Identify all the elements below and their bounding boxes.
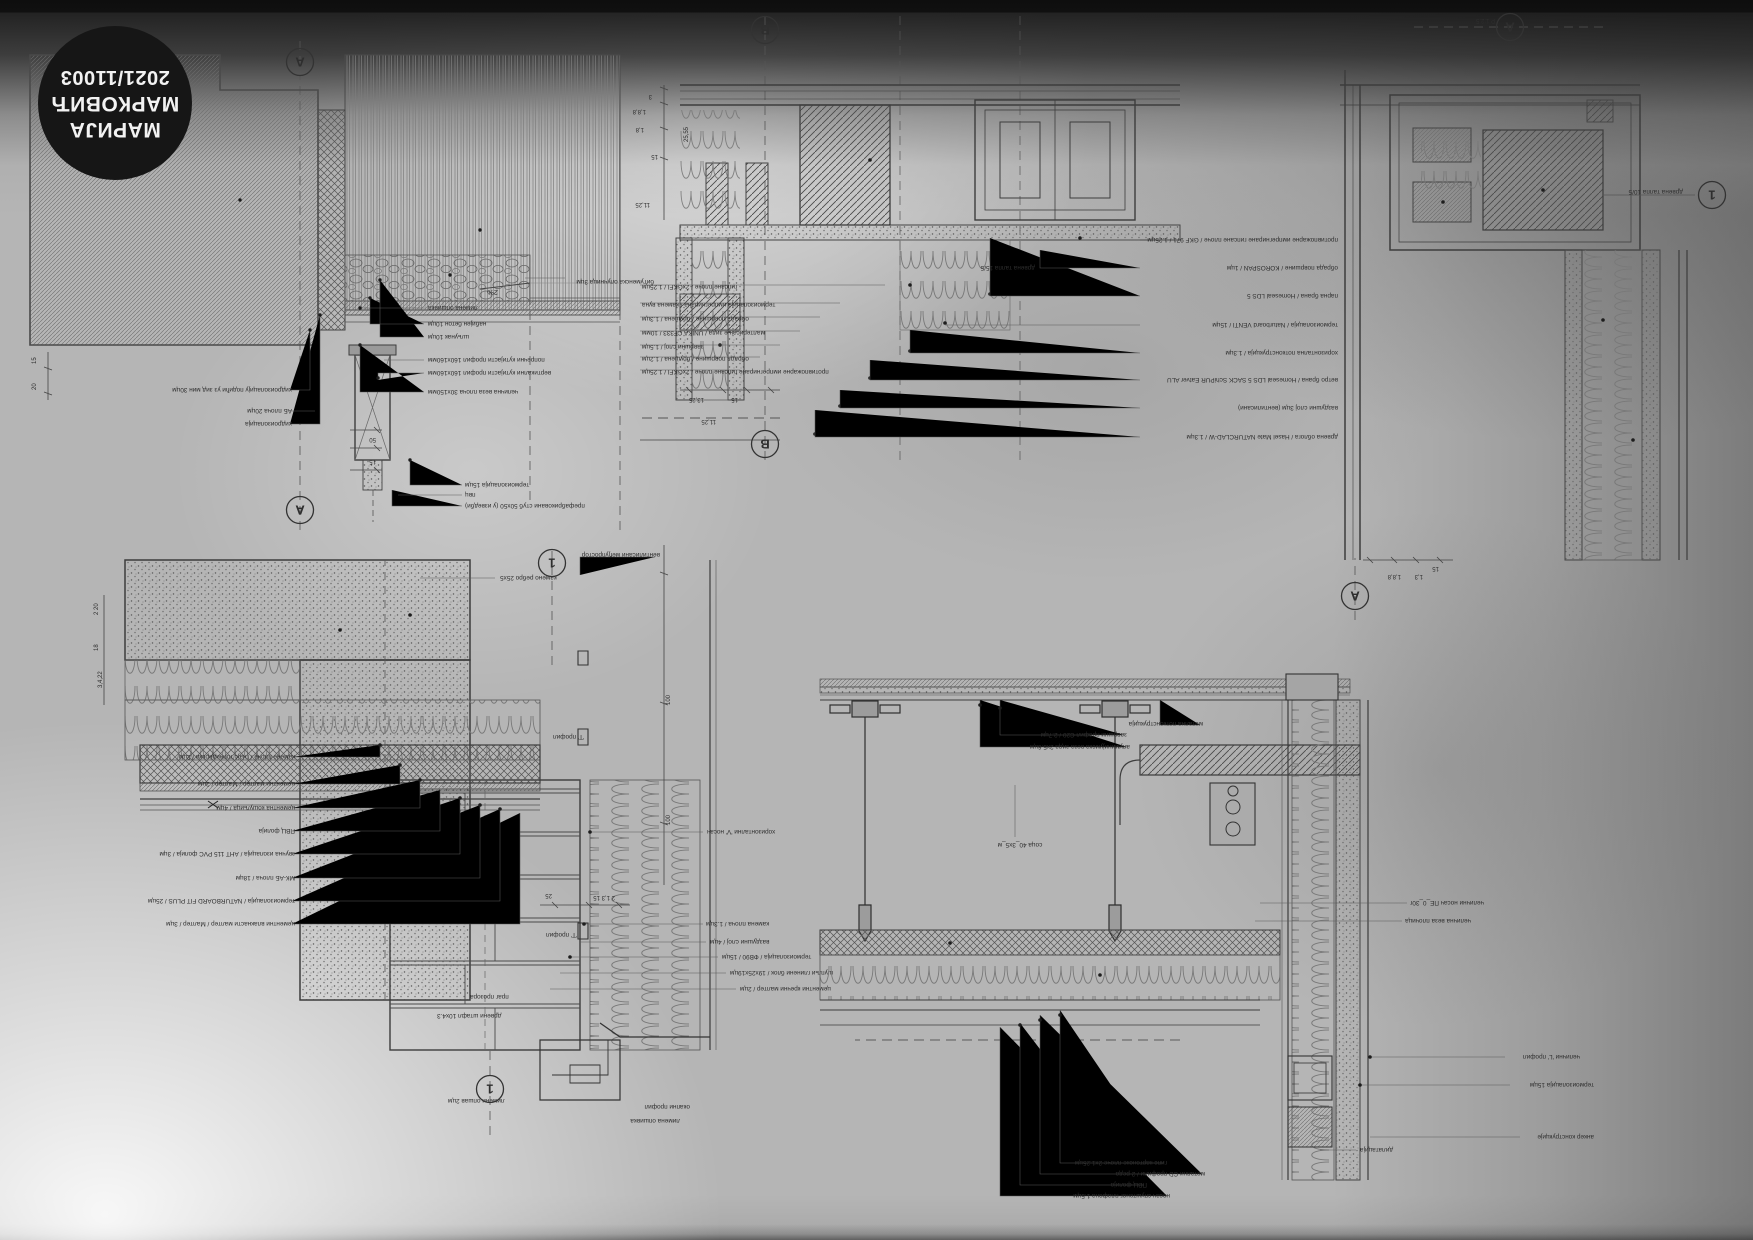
annotation-label: хоризонтална потконструкција / 1.3цм (1225, 349, 1338, 356)
window-plan-detail: противпожарне импрегниране гипсане плоче… (632, 15, 1338, 460)
section-marker-letter: 1 (1708, 188, 1715, 203)
annotation-label: 1,3 (1414, 573, 1423, 579)
masonry-pier (800, 105, 890, 225)
annotation-label: обрада површине / KOROSPAN / 1цм (1227, 264, 1338, 272)
annotation-label: термоизолација 15цм (465, 481, 529, 488)
annotation-label: 15 (32, 357, 38, 364)
section-marker-letter: A (1350, 589, 1360, 604)
annotation-label: малтерисање зида / UNIKA CF333 / 10мм (642, 329, 765, 336)
annotation-label: метална потконструкција (1128, 720, 1203, 727)
anchor-plate (1210, 783, 1255, 845)
annotation-label: анкер конструкције (1537, 1133, 1594, 1140)
section-marker-letter: A (295, 55, 305, 70)
annotation-label: дрвена облога / Hasel Mate NATURCLAD-W /… (1187, 433, 1338, 441)
annotation-label: 1,8,8 (632, 108, 646, 114)
window-frames (975, 100, 1135, 220)
annotation-label: попречни кутијасти профил 160x160мм (428, 356, 545, 363)
annotation-label: 50 (369, 436, 376, 442)
corner-window-detail: Р 1:2.5дрвена талпа 10/51,8,81,315AA1 (1340, 14, 1726, 621)
section-marker-letter: A (295, 503, 305, 518)
section-marker-letter: B (760, 23, 769, 38)
annotation-label: цементни малтер / Малтер / 2цм (198, 780, 295, 787)
annotation-label: 3,4,22 (98, 671, 104, 688)
annotation-label: 1,8,8 (1387, 573, 1401, 579)
annotation-label: 100 (666, 694, 672, 705)
annotation-label: противпожарне импрегниране гипсане плоче… (1147, 236, 1338, 243)
annotation-label: 15 (1432, 565, 1439, 571)
student-first-name: МАРИЈА (69, 116, 161, 142)
annotation-label: праг прозора (470, 993, 509, 1000)
annotation-label: цементни кречни малтер / 2цм (740, 985, 831, 992)
annotation-label: лимена опшивка (428, 304, 478, 311)
annotation-label: 11,25 (635, 201, 650, 207)
annotation-label: Р 1:2.5 (1475, 17, 1495, 23)
concrete-beam (125, 560, 470, 660)
annotation-label: ПВЦ фолија (1110, 1181, 1147, 1188)
annotation-label: термоизолација импрегнирана / камена вун… (642, 301, 776, 308)
section-marker-letter: B (760, 437, 769, 452)
annotation-label: 'Т' профил (553, 733, 585, 740)
annotation-label: обрада површине / брушена / 1.2цм (642, 355, 749, 363)
insulation-strip (318, 110, 345, 330)
annotation-label: набијен бетон 10цм (428, 320, 486, 328)
annotation-label: ветро брана / Homeseal LDS 5 SACK SchiPU… (1167, 376, 1338, 384)
annotation-label: термоизолација / NATURBOARD FIT PLUS / 2… (148, 897, 295, 904)
annotation-label: челични носач ПЕ_0_30г (1409, 899, 1484, 906)
annotation-label: звучна изолација / АНТ 115 PVC фолија / … (159, 850, 295, 857)
annotation-label: 20 (32, 383, 38, 390)
annotation-label: ваздушни слој / 4цм (710, 938, 769, 945)
annotation-label: 11,25 (701, 418, 716, 424)
annotation-label: хоризонтални 'V' носач (707, 828, 775, 835)
annotation-label: окапни профил (644, 1103, 690, 1110)
dimension-ticks (44, 352, 382, 473)
scanned-drawing-sheet: МАРИЈА МАРКОВИЋ 2021/11003 (0, 0, 1753, 1240)
annotation-label: алуминијумска веза зида 2x5.6цм (1030, 743, 1130, 750)
annotation-label: цементни влакнасти малтер / Малтер / 3цм (166, 920, 295, 927)
facade-corner-detail: камене плоче / гнајс топчидерски / 2цмце… (94, 545, 833, 1135)
drawing-sheet-svg: хидроизолацију подићи уз зид мин 30цмАБ … (0, 0, 1753, 1240)
insulation-squiggle (680, 110, 740, 220)
annotation-label: челична веза плоча 30x150мм (428, 388, 518, 395)
annotation-label: префабриковани стуб 50x50 (у изведби) (465, 502, 585, 510)
annotation-label: парна брана / Homeseal LDS 5 (1247, 292, 1338, 300)
annotation-label: хидроизолацију подићи уз зид мин 30цм (172, 386, 292, 394)
annotation-label: носач спуштеног плафона 1.5цм (1073, 1192, 1170, 1199)
annotation-label: дрвени штафл 10x4.3 (437, 1012, 502, 1019)
mortar-band (680, 225, 1180, 240)
annotation-label: камена плоча / 1.3цм (706, 920, 769, 927)
annotation-label: 'Т' профил (546, 931, 578, 938)
student-last-name: МАРКОВИЋ (51, 90, 179, 116)
annotation-label: 3 (648, 93, 652, 99)
annotation-label: камене плоче / гнајс топчидерски / 2цм (179, 753, 295, 760)
annotation-label: дрвена талпа 10/5 (1628, 188, 1683, 195)
annotation-label: лимена опшивка (630, 1117, 680, 1124)
ceiling-section-detail: завршни профил C20 / 2.7цмалуминијумска … (820, 674, 1594, 1199)
student-stamp-badge: МАРИЈА МАРКОВИЋ 2021/11003 (38, 26, 192, 180)
slab-band (820, 679, 1350, 700)
annotation-label: завршни слој / 1.5цм (642, 343, 704, 350)
annotation-label: гипс картонске плоче 2x1.25цм (1075, 1159, 1167, 1166)
insulation-column (590, 780, 700, 1050)
screed-layer (820, 930, 1280, 955)
annotation-label: шупљи глинени блок / 19x25x19цм (730, 969, 833, 977)
annotation-label: 100 (666, 814, 672, 825)
annotation-label: хидроизолација (245, 420, 292, 427)
annotation-label: камено ребро 25x5 (500, 574, 557, 582)
annotation-label: цементна кошуљица / 4цм (216, 804, 295, 811)
annotation-label: 15 (651, 153, 658, 159)
annotation-label: метални CD профили / 2 реда (1115, 1170, 1205, 1177)
annotation-label: ПВЦ фолија (258, 827, 295, 834)
section-marker-letter: 1 (548, 556, 555, 571)
annotation-label: 2% (487, 288, 498, 297)
section-marker-letter: A (1505, 20, 1515, 35)
gravel-layer (345, 255, 530, 301)
annotation-label: гипсане плоче / 2xGKFI / 1.25цм (642, 283, 737, 290)
wall-strip (1642, 250, 1660, 560)
annotation-label: 13,25 (688, 396, 704, 402)
annotation-label: ваздушни слој 3цм (вентилисани) (1238, 404, 1338, 411)
annotation-label: обрада површине / брушена / 1.3цм (642, 315, 749, 323)
annotation-label: противпожарне импрегниране гипсане плоче… (642, 368, 829, 375)
annotation-label: соца 40_3x5_м (998, 841, 1043, 848)
annotation-label: 2 20 (94, 603, 100, 615)
annotation-label: 25 (545, 892, 552, 898)
annotation-label: челични 'L' профил (1523, 1053, 1580, 1060)
annotation-label: термоизолација / Naturboard VENTI / 15цм (1212, 321, 1338, 328)
annotation-label: 25,55 (684, 126, 690, 142)
annotation-label: вентилисани међупростор (581, 551, 660, 558)
annotation-label: завршни профил C20 / 2.7цм (1041, 731, 1127, 738)
annotation-label: термоизолација 15цм (1530, 1081, 1594, 1088)
dimension-lines (1363, 557, 1453, 563)
annotation-label: 15 (369, 458, 376, 464)
annotation-label: вертикални кутијасти профил 160x160мм (428, 369, 551, 376)
student-index-number: 2021/11003 (60, 64, 170, 90)
annotation-label: 2 1,3 15 (593, 894, 615, 900)
annotation-label: МК-АБ плоча / 18цм (236, 874, 295, 881)
timber-member (1483, 130, 1603, 230)
annotation-label: шљунак 10цм (428, 333, 469, 340)
annotation-label: 1,8 (635, 126, 644, 132)
wall-band (680, 85, 1180, 105)
annotation-label: челична веза плочица (1405, 917, 1471, 924)
annotation-label: 15 (731, 396, 738, 402)
annotation-label: 18 (94, 644, 100, 651)
annotation-label: АБ плоча 20цм (247, 407, 292, 414)
annotation-label: дилатација (1360, 1146, 1394, 1153)
insulation-layer (820, 955, 1280, 1000)
annotation-label: термоизолација / ФВ90 / 15цм (722, 953, 811, 960)
annotation-label: пвц (465, 491, 476, 498)
annotation-label: дрвена талпа 15/5 (980, 264, 1035, 271)
section-marker-letter: 1 (486, 1082, 493, 1097)
